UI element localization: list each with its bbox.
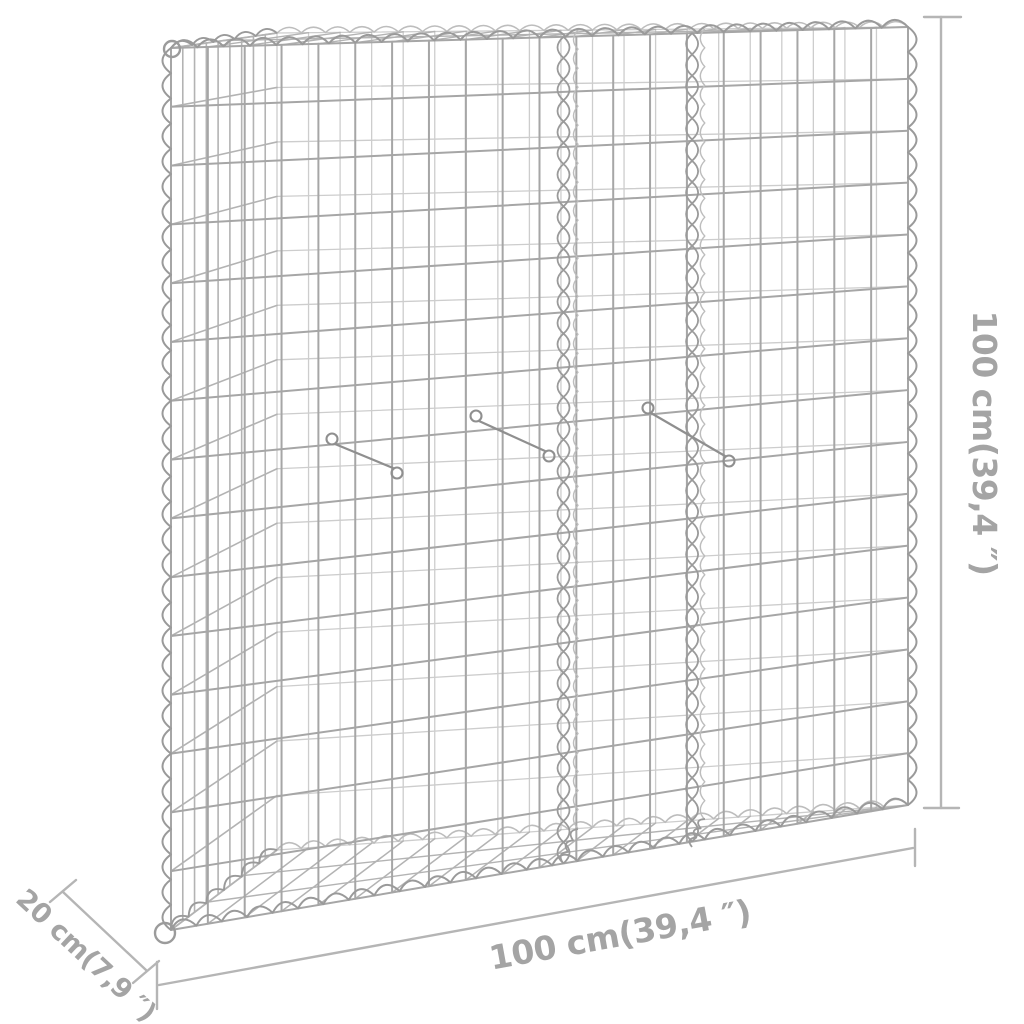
back-face-mesh (277, 27, 908, 850)
gabion-basket (155, 20, 917, 943)
side-face-mesh (171, 33, 277, 930)
depth-dimension-label: 20 cm(7,9 ″) (10, 883, 162, 1024)
height-dimension-label: 100 cm(39,4 ″) (965, 310, 1004, 575)
scene-svg: 100 cm(39,4 ″) 100 cm(39,4 ″) 20 cm(7,9 … (0, 0, 1024, 1024)
height-dimension-line (924, 17, 961, 808)
divider-seam-coils (558, 29, 705, 864)
front-face-mesh (171, 27, 908, 930)
width-dimension-label: 100 cm(39,4 ″) (486, 892, 754, 978)
product-image: 100 cm(39,4 ″) 100 cm(39,4 ″) 20 cm(7,9 … (0, 0, 1024, 1024)
